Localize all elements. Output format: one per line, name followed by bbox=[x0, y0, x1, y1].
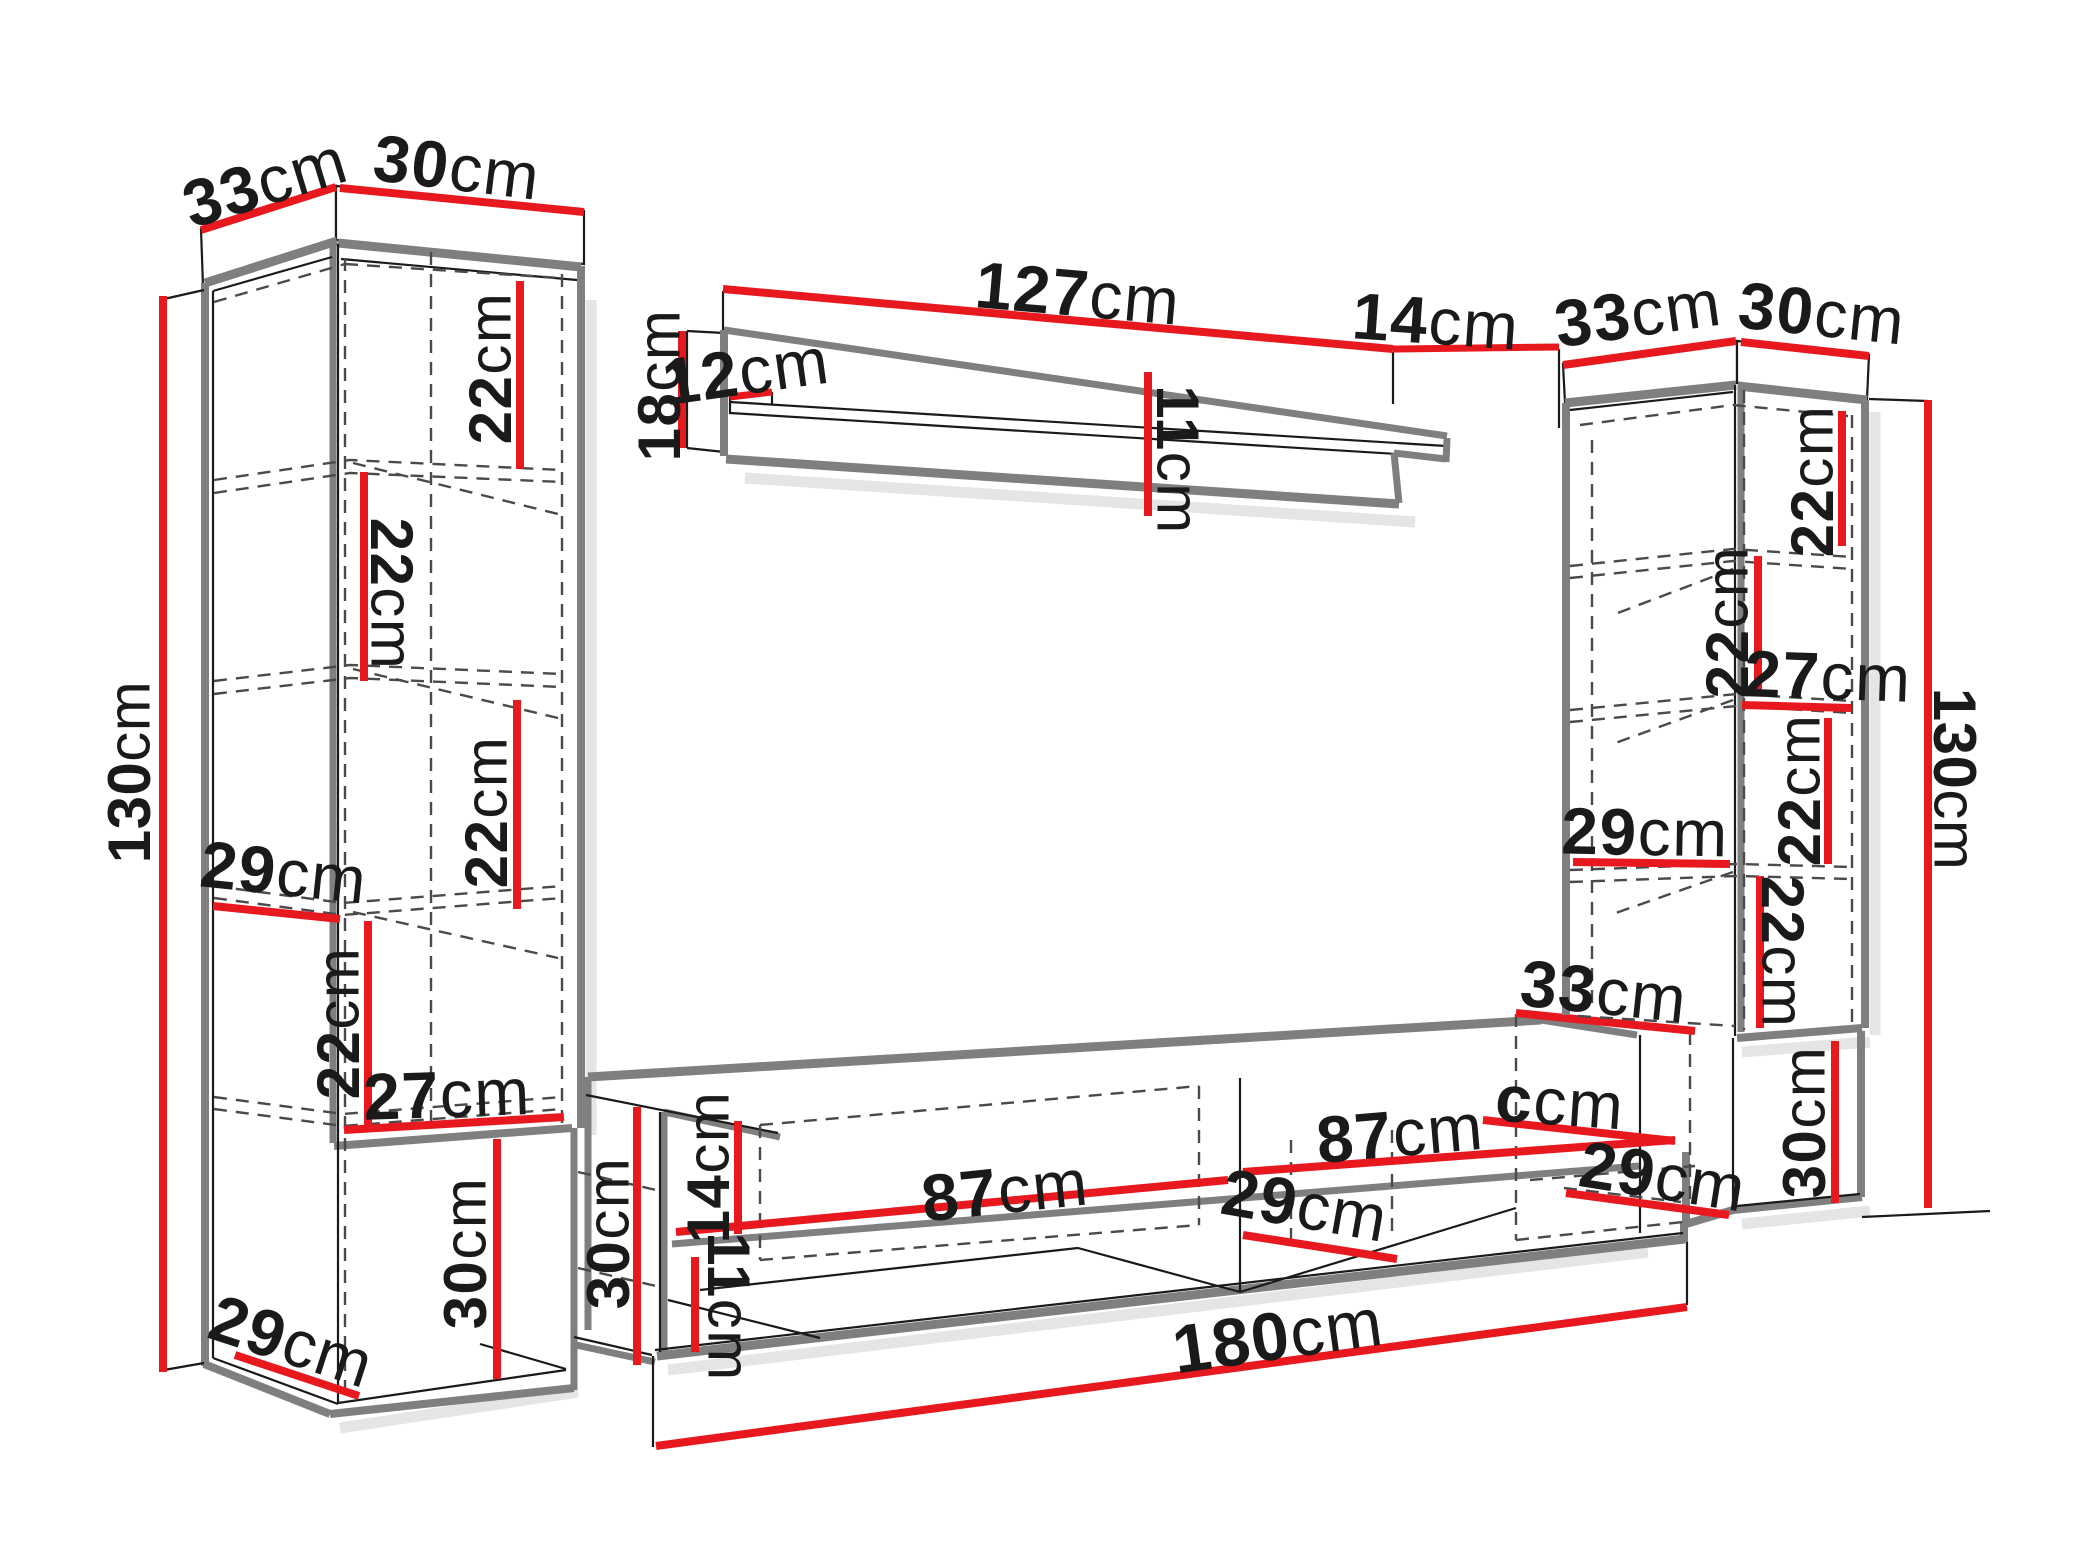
svg-text:30cm: 30cm bbox=[1771, 1046, 1838, 1199]
svg-text:11cm: 11cm bbox=[696, 1232, 763, 1381]
svg-text:ccm: ccm bbox=[1493, 1061, 1627, 1144]
svg-text:27cm: 27cm bbox=[1743, 636, 1913, 716]
svg-text:22cm: 22cm bbox=[1750, 876, 1817, 1029]
svg-text:130cm: 130cm bbox=[96, 681, 163, 864]
svg-text:30cm: 30cm bbox=[575, 1157, 642, 1310]
svg-text:30cm: 30cm bbox=[432, 1177, 499, 1330]
svg-text:27cm: 27cm bbox=[362, 1054, 532, 1134]
svg-text:14cm: 14cm bbox=[1350, 278, 1522, 363]
svg-text:22cm: 22cm bbox=[1766, 714, 1833, 867]
svg-text:22cm: 22cm bbox=[457, 292, 524, 445]
svg-text:22cm: 22cm bbox=[359, 518, 426, 671]
svg-text:22cm: 22cm bbox=[1779, 405, 1846, 558]
svg-text:22cm: 22cm bbox=[453, 736, 520, 889]
svg-text:130cm: 130cm bbox=[1922, 688, 1989, 871]
svg-text:14cm: 14cm bbox=[675, 1091, 742, 1244]
svg-text:22cm: 22cm bbox=[305, 947, 372, 1100]
svg-text:11cm: 11cm bbox=[1145, 385, 1212, 534]
svg-text:29cm: 29cm bbox=[1561, 794, 1730, 871]
svg-text:87cm: 87cm bbox=[1313, 1089, 1486, 1177]
